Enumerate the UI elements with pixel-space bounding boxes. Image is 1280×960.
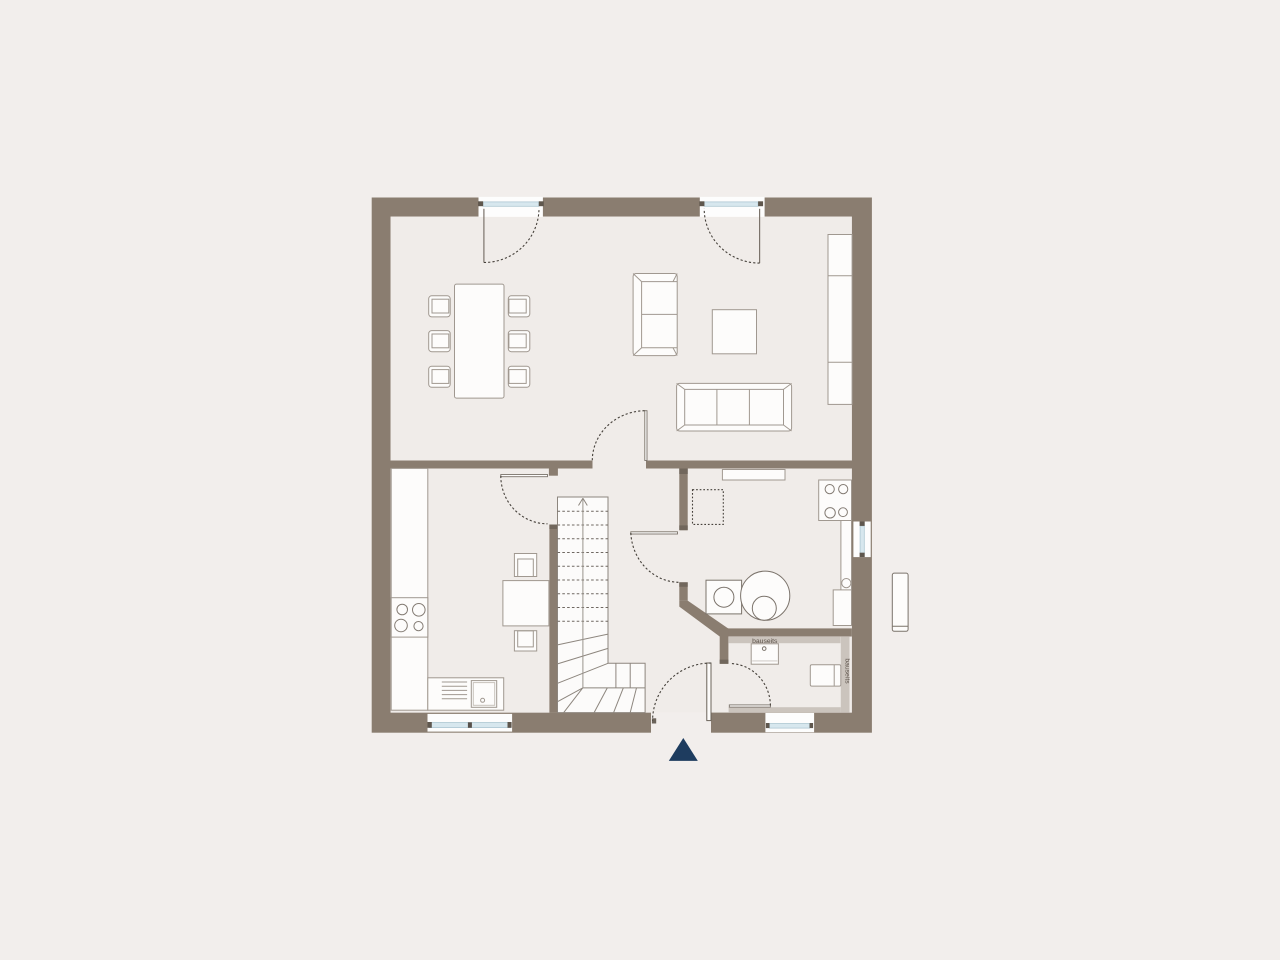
svg-text:bauseits: bauseits bbox=[844, 658, 851, 684]
svg-text:bauseits: bauseits bbox=[752, 638, 778, 645]
